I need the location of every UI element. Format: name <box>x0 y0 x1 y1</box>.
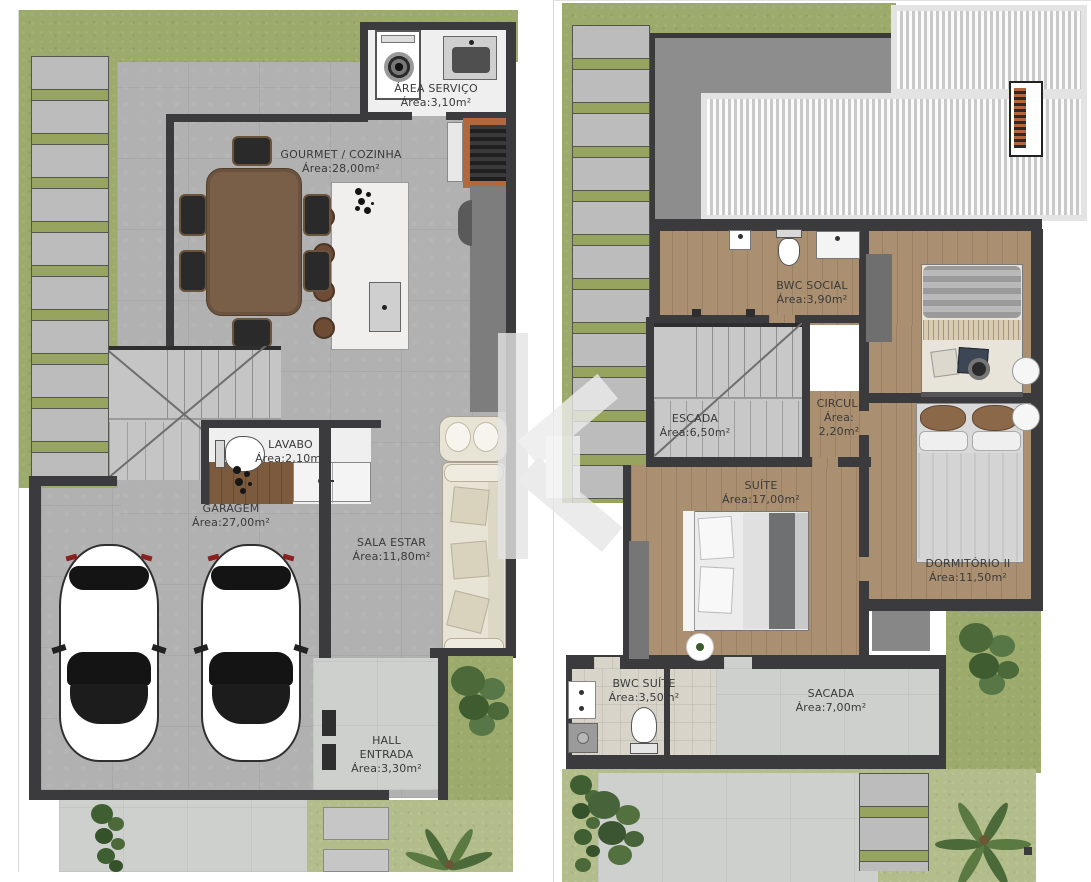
hedge <box>87 802 177 872</box>
palm-tree <box>391 834 511 872</box>
wall <box>29 476 117 486</box>
room-area: Área:28,00m² <box>241 162 441 176</box>
door-jamb <box>746 309 755 317</box>
room-area: Área:11,80m² <box>319 550 464 564</box>
door-opening <box>594 657 620 669</box>
wall <box>650 315 861 323</box>
door-jamb <box>692 309 701 317</box>
stepping-paver <box>323 849 389 872</box>
wall <box>360 22 508 30</box>
room-label-bwc-social: BWC SOCIAL Área:3,90m² <box>752 279 872 307</box>
paver-walkway-left <box>31 56 109 480</box>
concrete-slab <box>650 33 892 93</box>
door-opening <box>769 315 795 323</box>
bed-double <box>683 511 809 631</box>
island-decor-plant <box>349 186 379 216</box>
dining-chair <box>303 194 331 236</box>
paver-walkway-back <box>859 773 929 871</box>
kitchen-sink-side <box>458 200 472 246</box>
room-name: HALL ENTRADA <box>339 734 434 762</box>
shower-box <box>816 231 860 259</box>
floor-plan-upper: BWC SOCIAL Área:3,90m² ESCADA Área:6,50m… <box>553 0 1091 882</box>
stepping-paver <box>323 807 389 840</box>
room-name: DORMITÓRIO II <box>904 557 1032 571</box>
laundry-sink <box>443 36 497 80</box>
kitchen-counter-wall <box>470 186 506 412</box>
tree <box>951 617 1037 703</box>
room-name: GOURMET / COZINHA <box>241 148 441 162</box>
wall <box>566 755 946 769</box>
room-name: ÁREA SERVIÇO <box>346 82 526 96</box>
room-label-dormitorio-ii: DORMITÓRIO II Área:11,50m² <box>904 557 1032 585</box>
slab-edge <box>650 33 655 221</box>
side-table <box>1012 357 1040 385</box>
bathroom-sink <box>729 230 751 250</box>
room-area: Área:27,00m² <box>131 516 331 530</box>
island-sink <box>369 282 401 332</box>
armchair <box>439 416 507 462</box>
wardrobe <box>629 541 649 659</box>
room-label-garagem: GARAGEM Área:27,00m² <box>131 502 331 530</box>
metal-roof <box>891 5 1087 95</box>
wall <box>866 599 1041 611</box>
room-label-lavabo: LAVABO Área:2,10m² <box>233 438 348 466</box>
round-rug <box>686 633 716 663</box>
wall <box>506 22 516 658</box>
wall <box>566 655 948 669</box>
room-name: LAVABO <box>233 438 348 452</box>
wall <box>650 219 1042 231</box>
wall <box>166 114 174 354</box>
slab-edge <box>650 33 892 38</box>
room-label-bwc-suite: BWC SUÍTE Área:3,50m² <box>582 677 706 705</box>
room-label-sacada: SACADA Área:7,00m² <box>767 687 895 715</box>
room-label-sala-estar: SALA ESTAR Área:11,80m² <box>319 536 464 564</box>
palm-tree <box>929 797 1041 882</box>
room-area: Área:3,30m² <box>339 762 434 776</box>
side-table <box>1012 403 1040 431</box>
room-area: Área:2,10m² <box>233 452 348 466</box>
dining-chair <box>179 250 207 292</box>
toilet <box>776 229 802 269</box>
room-name: BWC SOCIAL <box>752 279 872 293</box>
concrete-slab <box>650 93 702 221</box>
bed-double <box>916 403 1024 563</box>
wall <box>201 420 381 428</box>
door-opening <box>724 657 752 669</box>
wall <box>646 317 654 465</box>
room-name: SALA ESTAR <box>319 536 464 550</box>
bed-single <box>921 264 1023 399</box>
room-label-area-servico: ÁREA SERVIÇO Área:3,10m² <box>346 82 526 110</box>
car <box>59 544 159 762</box>
room-name: ESCADA <box>633 412 757 426</box>
room-area: Área:6,50m² <box>633 426 757 440</box>
room-area: Área:17,00m² <box>699 493 823 507</box>
hall-pillar <box>322 744 336 770</box>
wall <box>650 219 660 325</box>
slab-block <box>872 611 930 651</box>
door-opening <box>812 457 838 467</box>
room-label-suite: SUÍTE Área:17,00m² <box>699 479 823 507</box>
room-name: SUÍTE <box>699 479 823 493</box>
room-area: Área: 2,20m² <box>808 411 870 439</box>
room-area: Área:3,10m² <box>346 96 526 110</box>
room-label-circul: CIRCUL. Área: 2,20m² <box>808 397 870 439</box>
room-name: CIRCUL. <box>808 397 870 411</box>
dining-chair <box>303 250 331 292</box>
door-opening <box>859 557 869 581</box>
room-name: SACADA <box>767 687 895 701</box>
tree <box>578 783 664 879</box>
wall <box>29 476 41 800</box>
dining-chair <box>179 194 207 236</box>
wall <box>802 317 810 465</box>
room-label-gourmet-cozinha: GOURMET / COZINHA Área:28,00m² <box>241 148 441 176</box>
floor-plan-ground: ÁREA SERVIÇO Área:3,10m² GOURMET / COZIN… <box>18 10 517 872</box>
room-area: Área:7,00m² <box>767 701 895 715</box>
grill-counter <box>447 122 463 182</box>
tree <box>443 660 515 744</box>
lavabo-counter <box>293 462 371 502</box>
car <box>201 544 301 762</box>
hall-pillar <box>322 710 336 736</box>
room-label-hall-entrada: HALL ENTRADA Área:3,30m² <box>339 734 434 776</box>
room-name: BWC SUÍTE <box>582 677 706 691</box>
boundary-mark <box>1024 847 1032 855</box>
plant <box>225 462 259 498</box>
shower-box <box>568 723 598 753</box>
chimney <box>1009 81 1043 157</box>
wall <box>166 114 368 122</box>
wall <box>201 420 209 504</box>
room-label-escada: ESCADA Área:6,50m² <box>633 412 757 440</box>
wall <box>29 790 389 800</box>
room-area: Área:3,50m² <box>582 691 706 705</box>
room-name: GARAGEM <box>131 502 331 516</box>
room-area: Área:3,90m² <box>752 293 872 307</box>
dining-table <box>206 168 302 316</box>
room-area: Área:11,50m² <box>904 571 1032 585</box>
floor-plan-sheet: ÁREA SERVIÇO Área:3,10m² GOURMET / COZIN… <box>0 0 1091 882</box>
bar-stool <box>313 317 335 339</box>
toilet <box>630 707 658 755</box>
dining-chair <box>232 318 272 348</box>
